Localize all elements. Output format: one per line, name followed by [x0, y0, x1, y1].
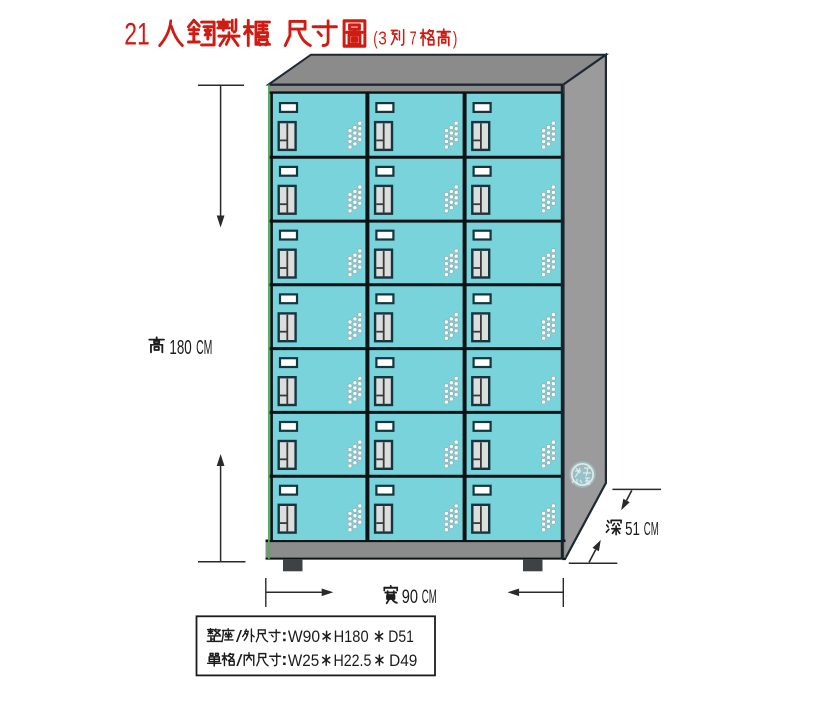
svg-text:W90: W90 — [288, 627, 320, 646]
svg-text:D49: D49 — [389, 651, 417, 670]
svg-text:H22.5: H22.5 — [334, 651, 372, 670]
svg-text:/: / — [236, 627, 243, 646]
svg-text:3: 3 — [378, 29, 387, 49]
svg-text:/: / — [236, 651, 243, 670]
svg-text:CM: CM — [422, 587, 437, 608]
svg-text:21: 21 — [124, 17, 150, 52]
svg-text:51: 51 — [625, 519, 640, 539]
svg-text:D51: D51 — [388, 627, 414, 646]
svg-text:CM: CM — [196, 336, 212, 359]
svg-text:7: 7 — [410, 29, 417, 49]
svg-text:(: ( — [373, 29, 377, 49]
svg-text:): ) — [453, 29, 458, 49]
svg-text:H180: H180 — [334, 627, 369, 646]
svg-text:CM: CM — [644, 519, 659, 539]
svg-text:W25: W25 — [288, 651, 319, 670]
svg-text:180: 180 — [169, 336, 191, 359]
svg-text:90: 90 — [402, 587, 418, 608]
